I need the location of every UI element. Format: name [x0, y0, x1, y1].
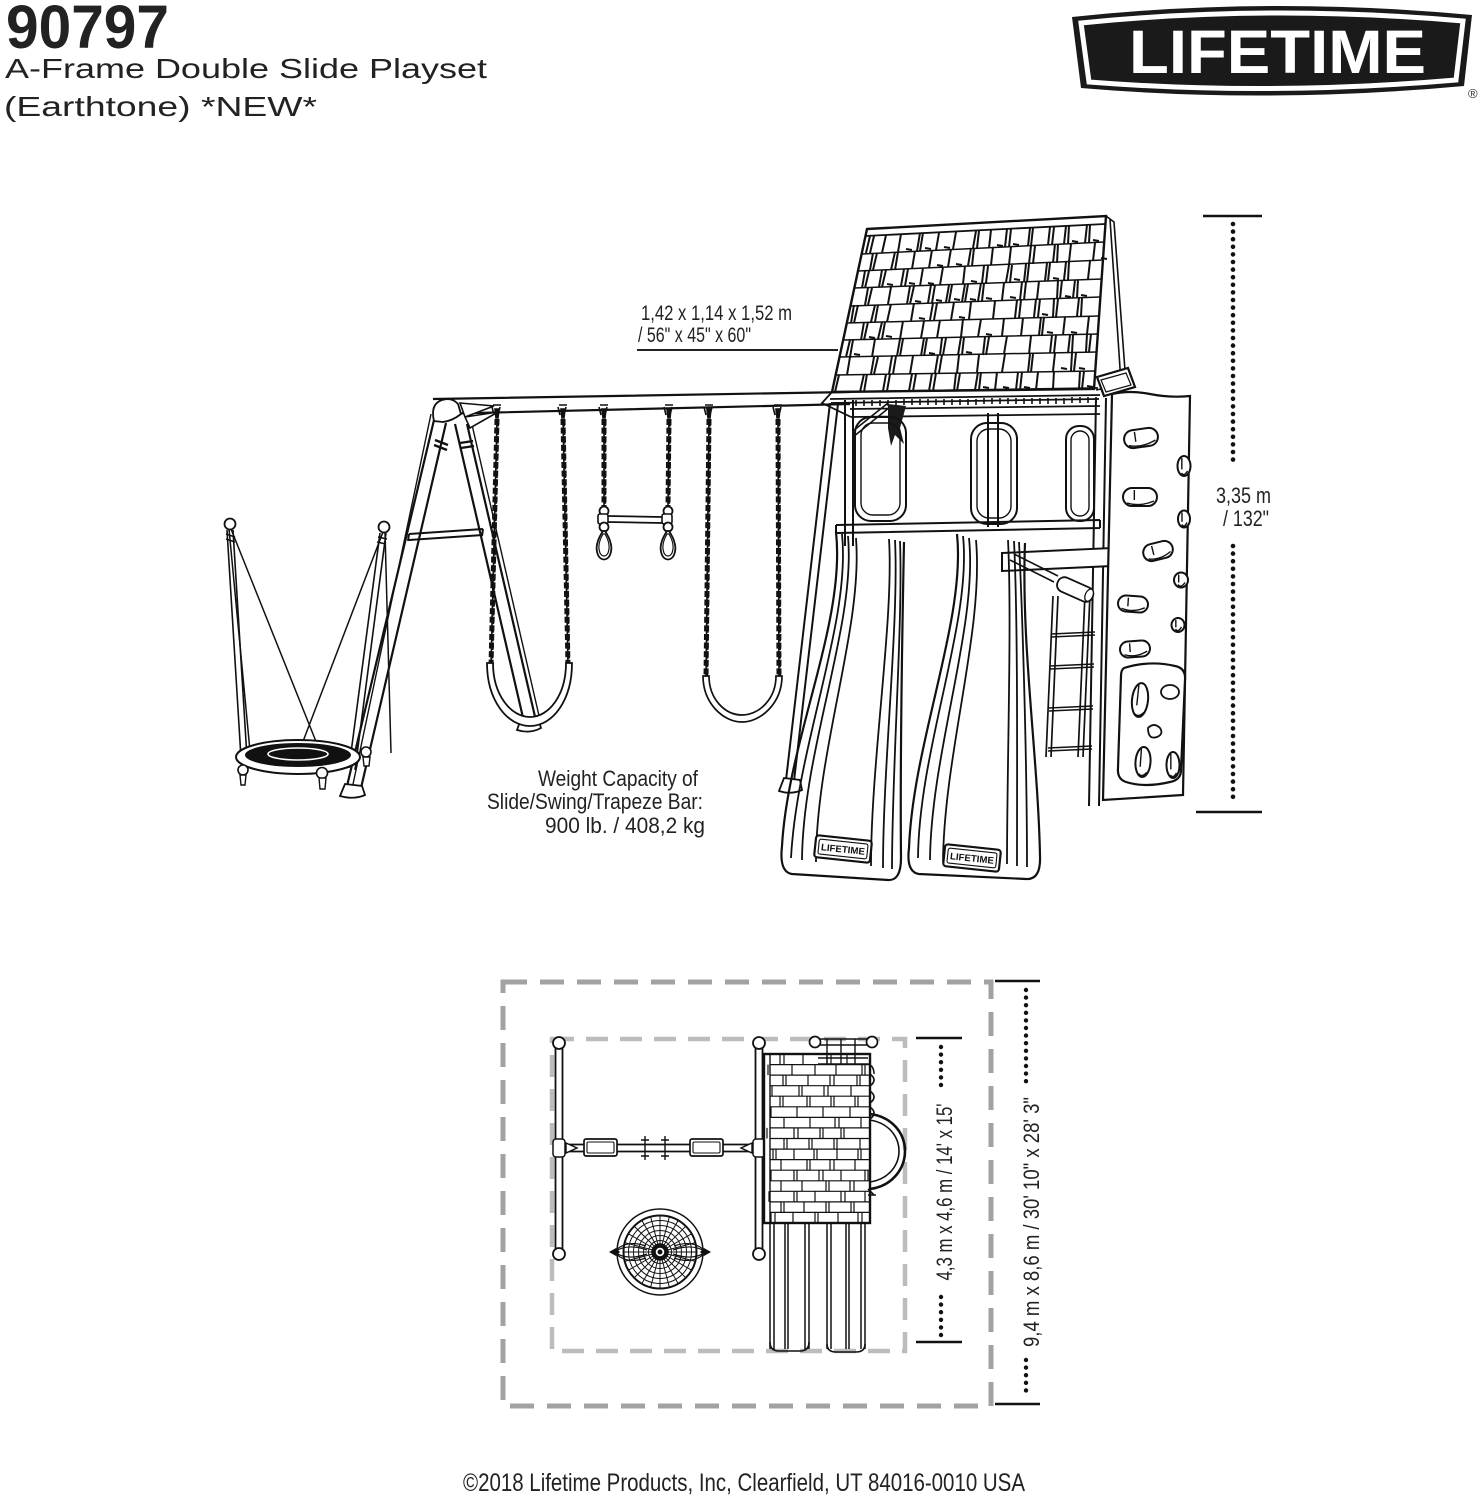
svg-text:900 lb. / 408,2 kg: 900 lb. / 408,2 kg: [545, 813, 705, 838]
svg-text:/ 132": / 132": [1223, 506, 1269, 531]
svg-text:1,42 x 1,14 x 1,52 m: 1,42 x 1,14 x 1,52 m: [641, 302, 792, 325]
svg-text:9,4 m x 8,6 m / 30' 10" x 28': 9,4 m x 8,6 m / 30' 10" x 28' 3": [1019, 1097, 1044, 1347]
svg-text:Weight Capacity of: Weight Capacity of: [538, 766, 699, 791]
svg-text:3,35 m: 3,35 m: [1216, 483, 1271, 508]
svg-text:(Earthtone) *NEW*: (Earthtone) *NEW*: [4, 91, 317, 122]
svg-text:®: ®: [1468, 86, 1478, 101]
svg-text:A-Frame Double Slide Playset: A-Frame Double Slide Playset: [5, 53, 487, 84]
svg-text:90797: 90797: [6, 0, 169, 61]
svg-text:LIFETIME: LIFETIME: [1129, 18, 1426, 86]
svg-text:4,3 m x 4,6 m / 14' x 15': 4,3 m x 4,6 m / 14' x 15': [932, 1104, 957, 1281]
svg-text:©2018 Lifetime Products, Inc,: ©2018 Lifetime Products, Inc, Clearfield…: [463, 1469, 1025, 1497]
svg-text:Slide/Swing/Trapeze Bar:: Slide/Swing/Trapeze Bar:: [487, 789, 703, 814]
svg-text:/ 56" x 45" x 60": / 56" x 45" x 60": [638, 324, 751, 347]
